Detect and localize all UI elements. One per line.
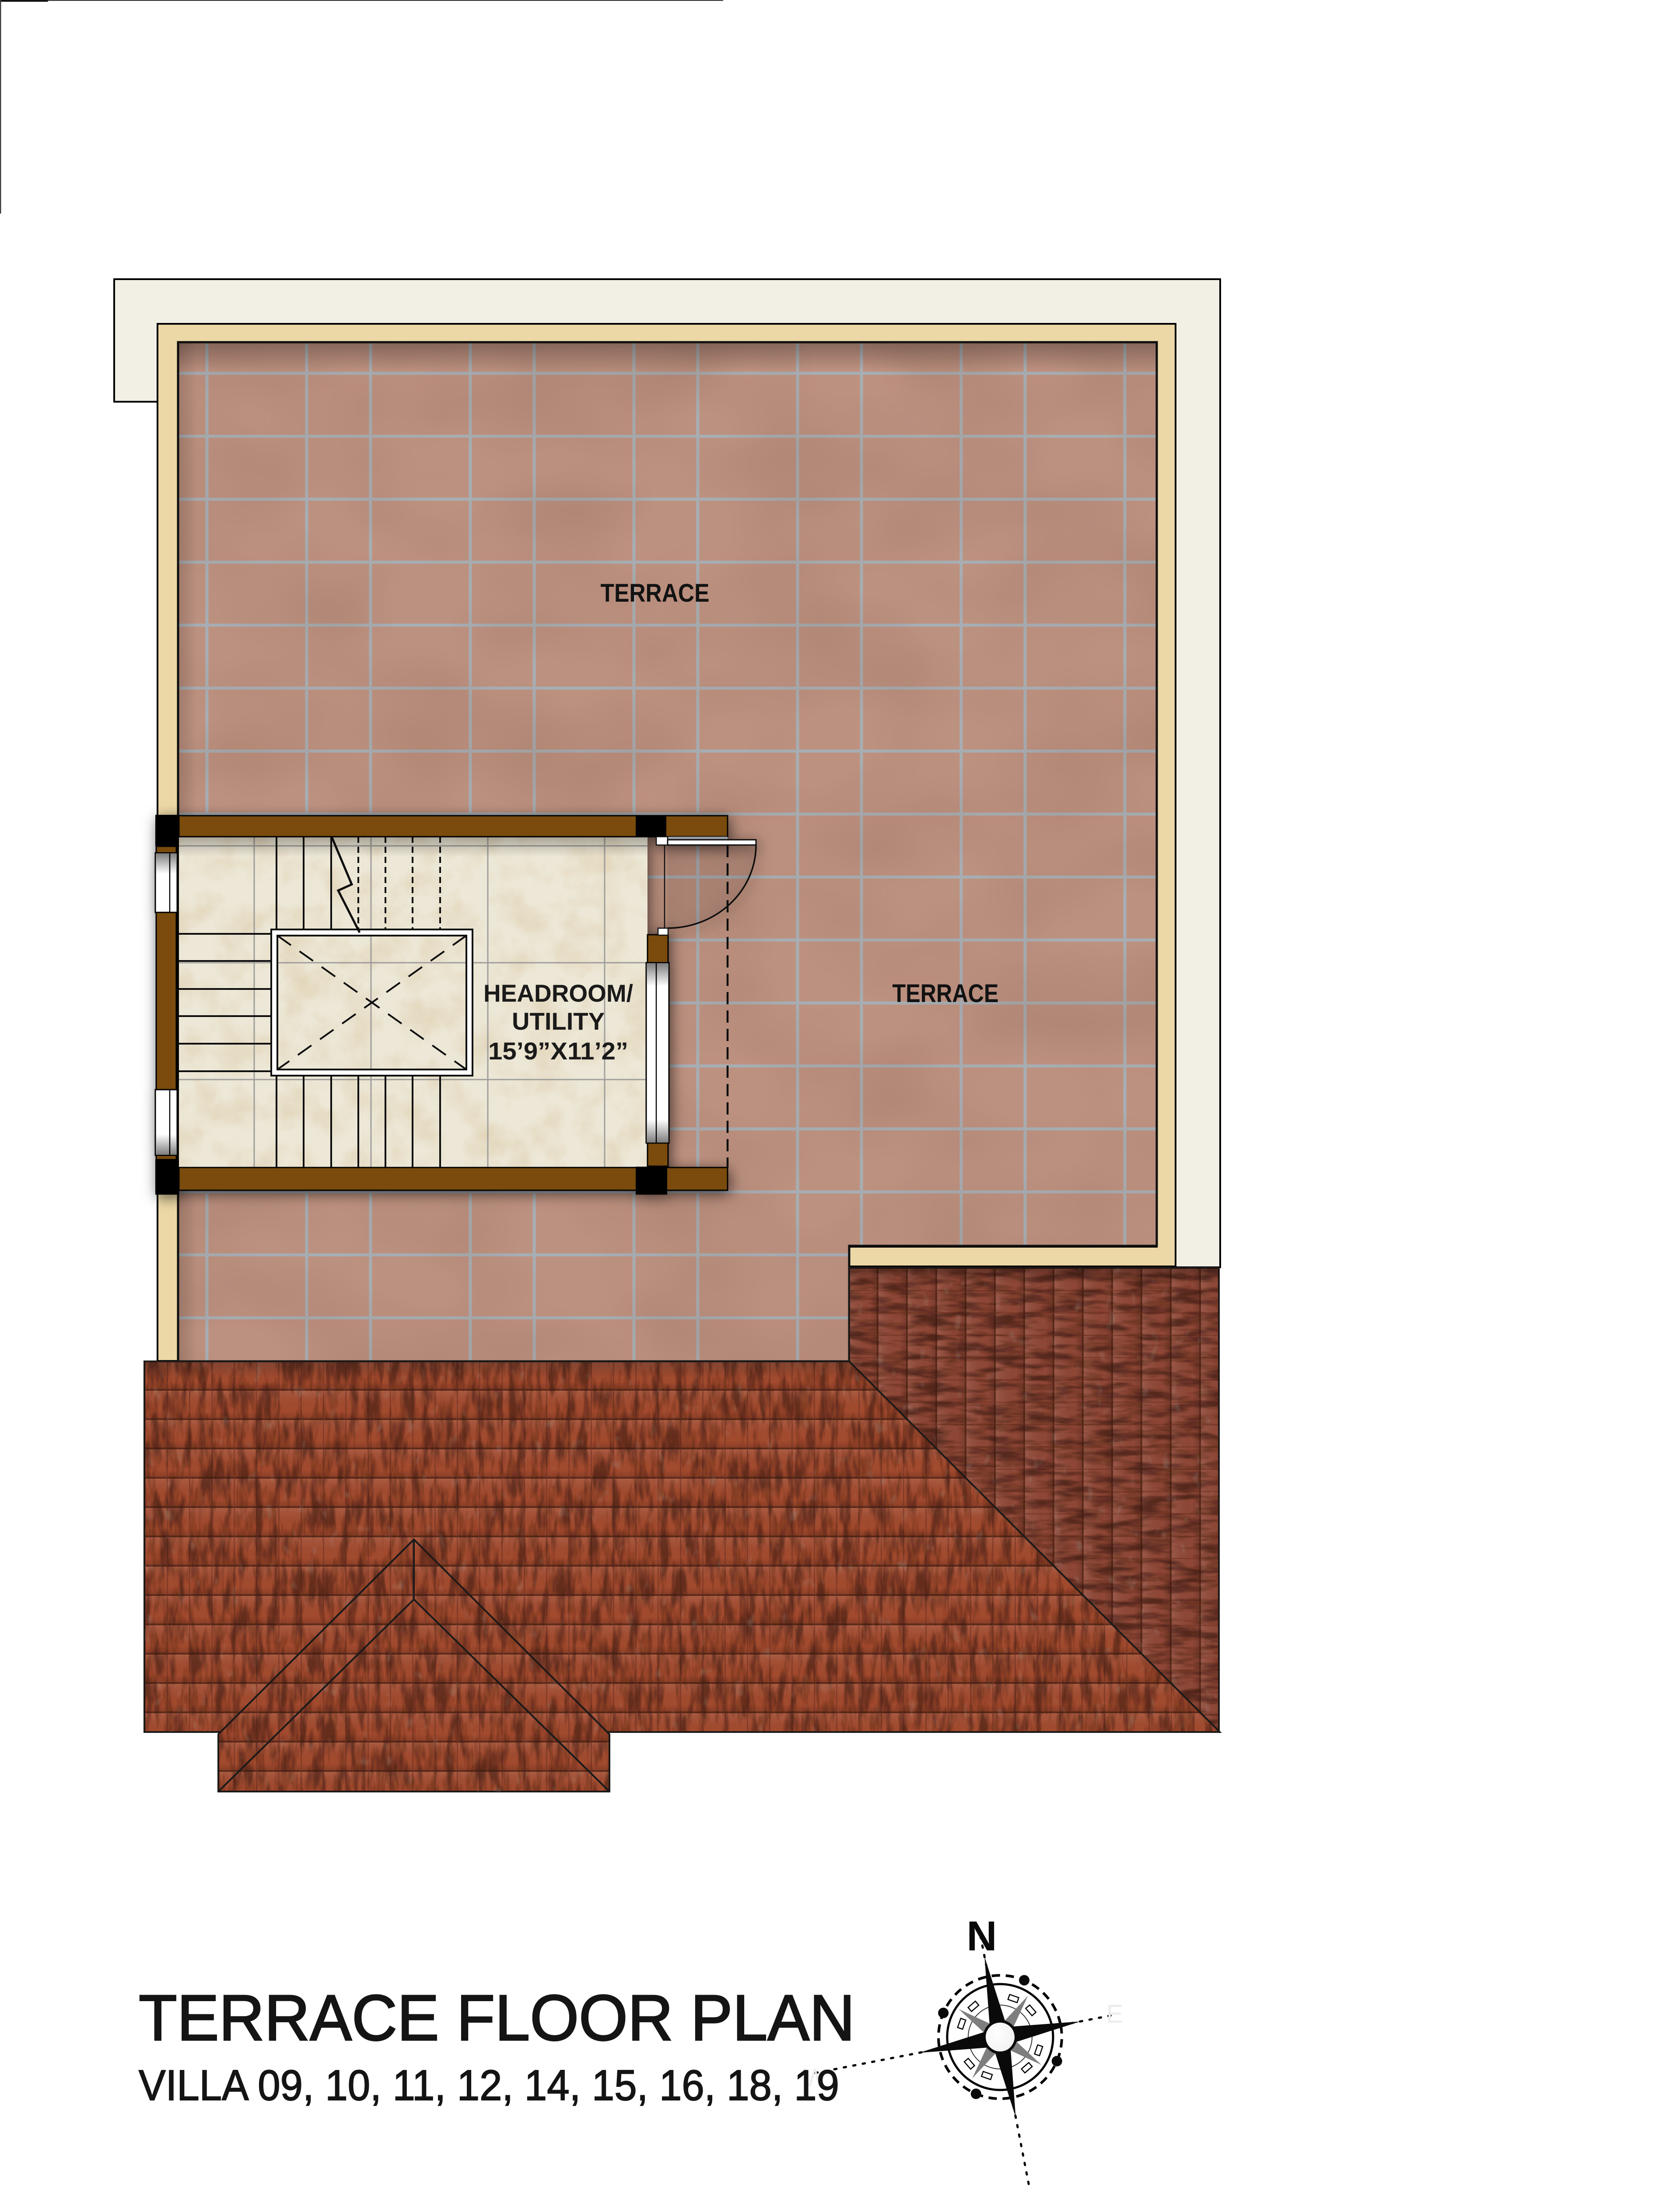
svg-text:UTILITY: UTILITY [512,1007,605,1035]
svg-text:TERRACE: TERRACE [892,979,999,1008]
svg-text:TERRACE: TERRACE [601,579,710,607]
svg-text:E: E [1106,2000,1123,2028]
svg-text:HEADROOM/: HEADROOM/ [483,979,633,1007]
svg-text:15’9”X11’2”: 15’9”X11’2” [488,1037,628,1065]
svg-text:TERRACE FLOOR PLAN: TERRACE FLOOR PLAN [139,1982,855,2054]
svg-text:N: N [966,1913,997,1960]
svg-text:VILLA 09, 10, 11, 12, 14, 15,: VILLA 09, 10, 11, 12, 14, 15, 16, 18, 19 [139,2061,839,2109]
